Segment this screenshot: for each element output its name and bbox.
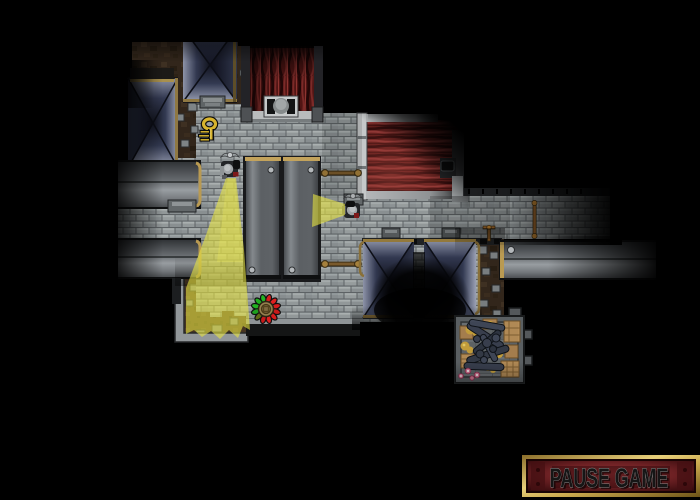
svg-text:PAUSE GAME: PAUSE GAME <box>550 462 668 493</box>
